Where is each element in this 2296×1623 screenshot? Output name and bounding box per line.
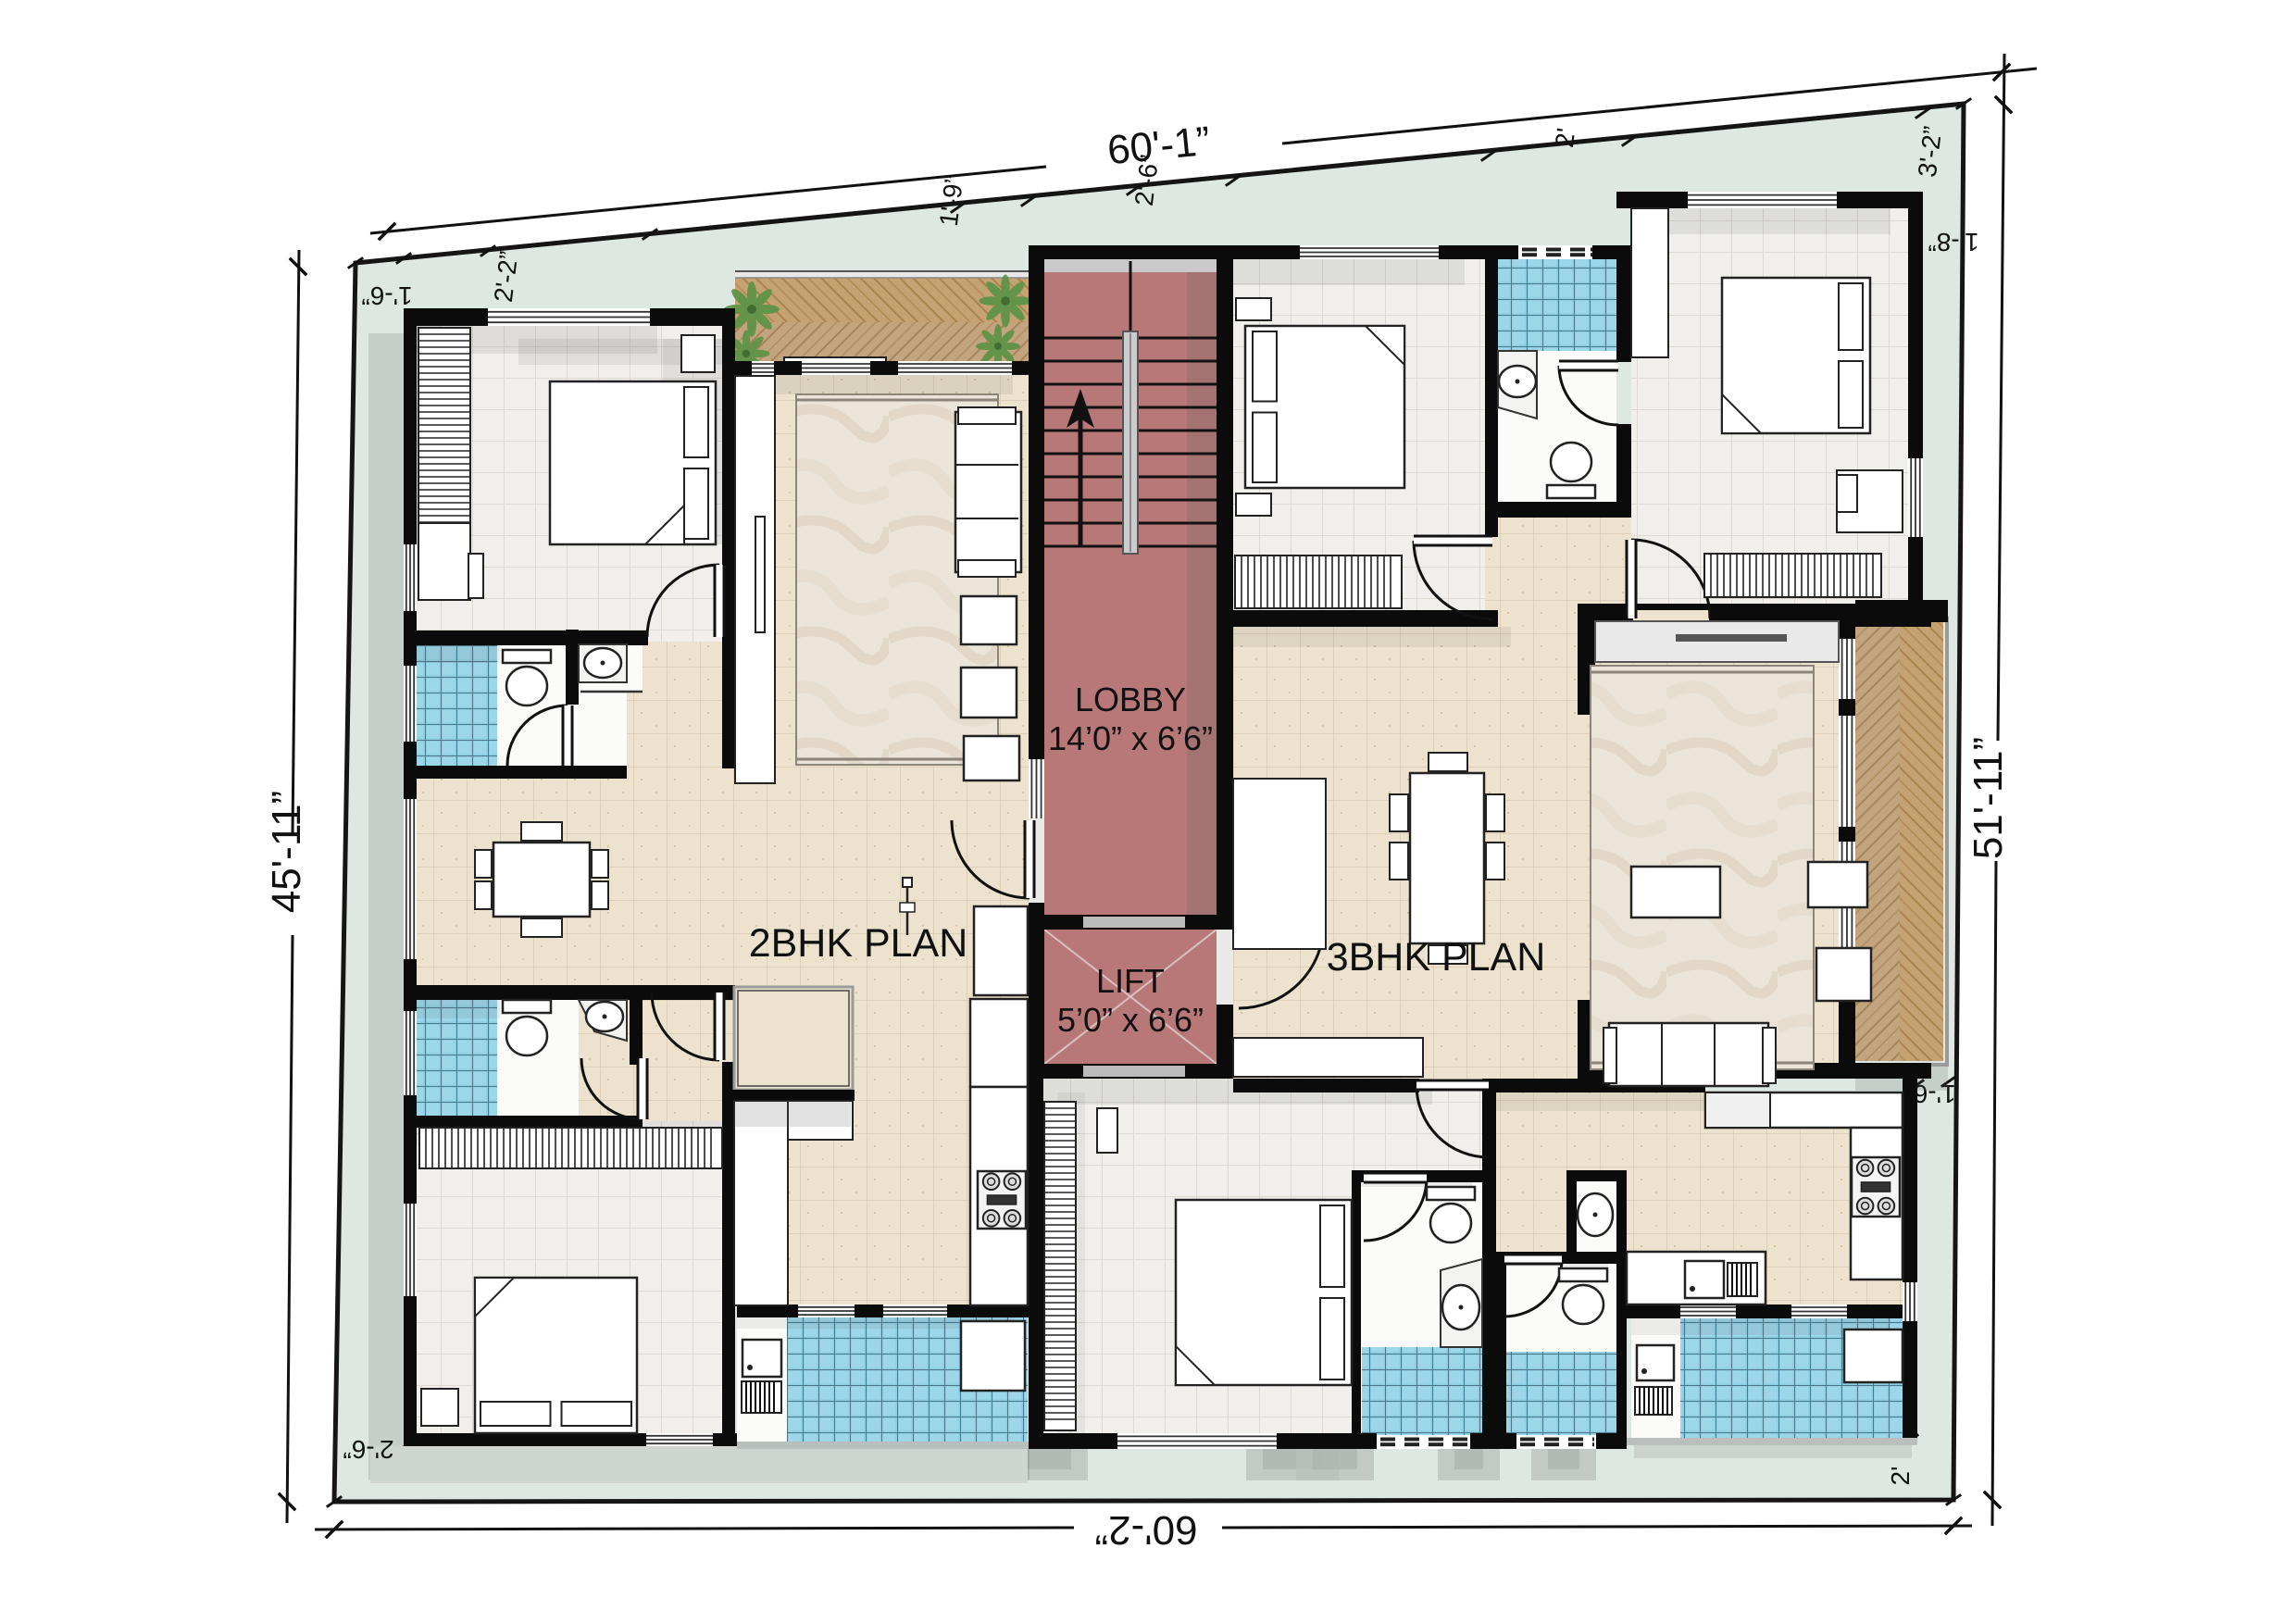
svg-text:2BHK PLAN: 2BHK PLAN [749, 921, 968, 966]
svg-text:2': 2' [1886, 1467, 1915, 1486]
svg-text:LIFT: LIFT [1096, 962, 1165, 1000]
svg-text:51'-11”: 51'-11” [1965, 737, 2011, 859]
svg-text:LOBBY: LOBBY [1075, 680, 1186, 718]
svg-text:45'-11”: 45'-11” [264, 791, 309, 913]
svg-text:1'-8”: 1'-8” [1928, 228, 1978, 256]
svg-text:1'-6”: 1'-6” [361, 281, 412, 310]
svg-text:60'-2”: 60'-2” [1094, 1507, 1197, 1553]
svg-text:3BHK PLAN: 3BHK PLAN [1327, 935, 1546, 980]
svg-text:2'-6”: 2'-6” [343, 1435, 393, 1464]
svg-text:2': 2' [1550, 127, 1580, 150]
svg-text:14’0” x 6’6”: 14’0” x 6’6” [1048, 719, 1213, 757]
svg-text:5’0” x 6’6”: 5’0” x 6’6” [1057, 1001, 1204, 1039]
